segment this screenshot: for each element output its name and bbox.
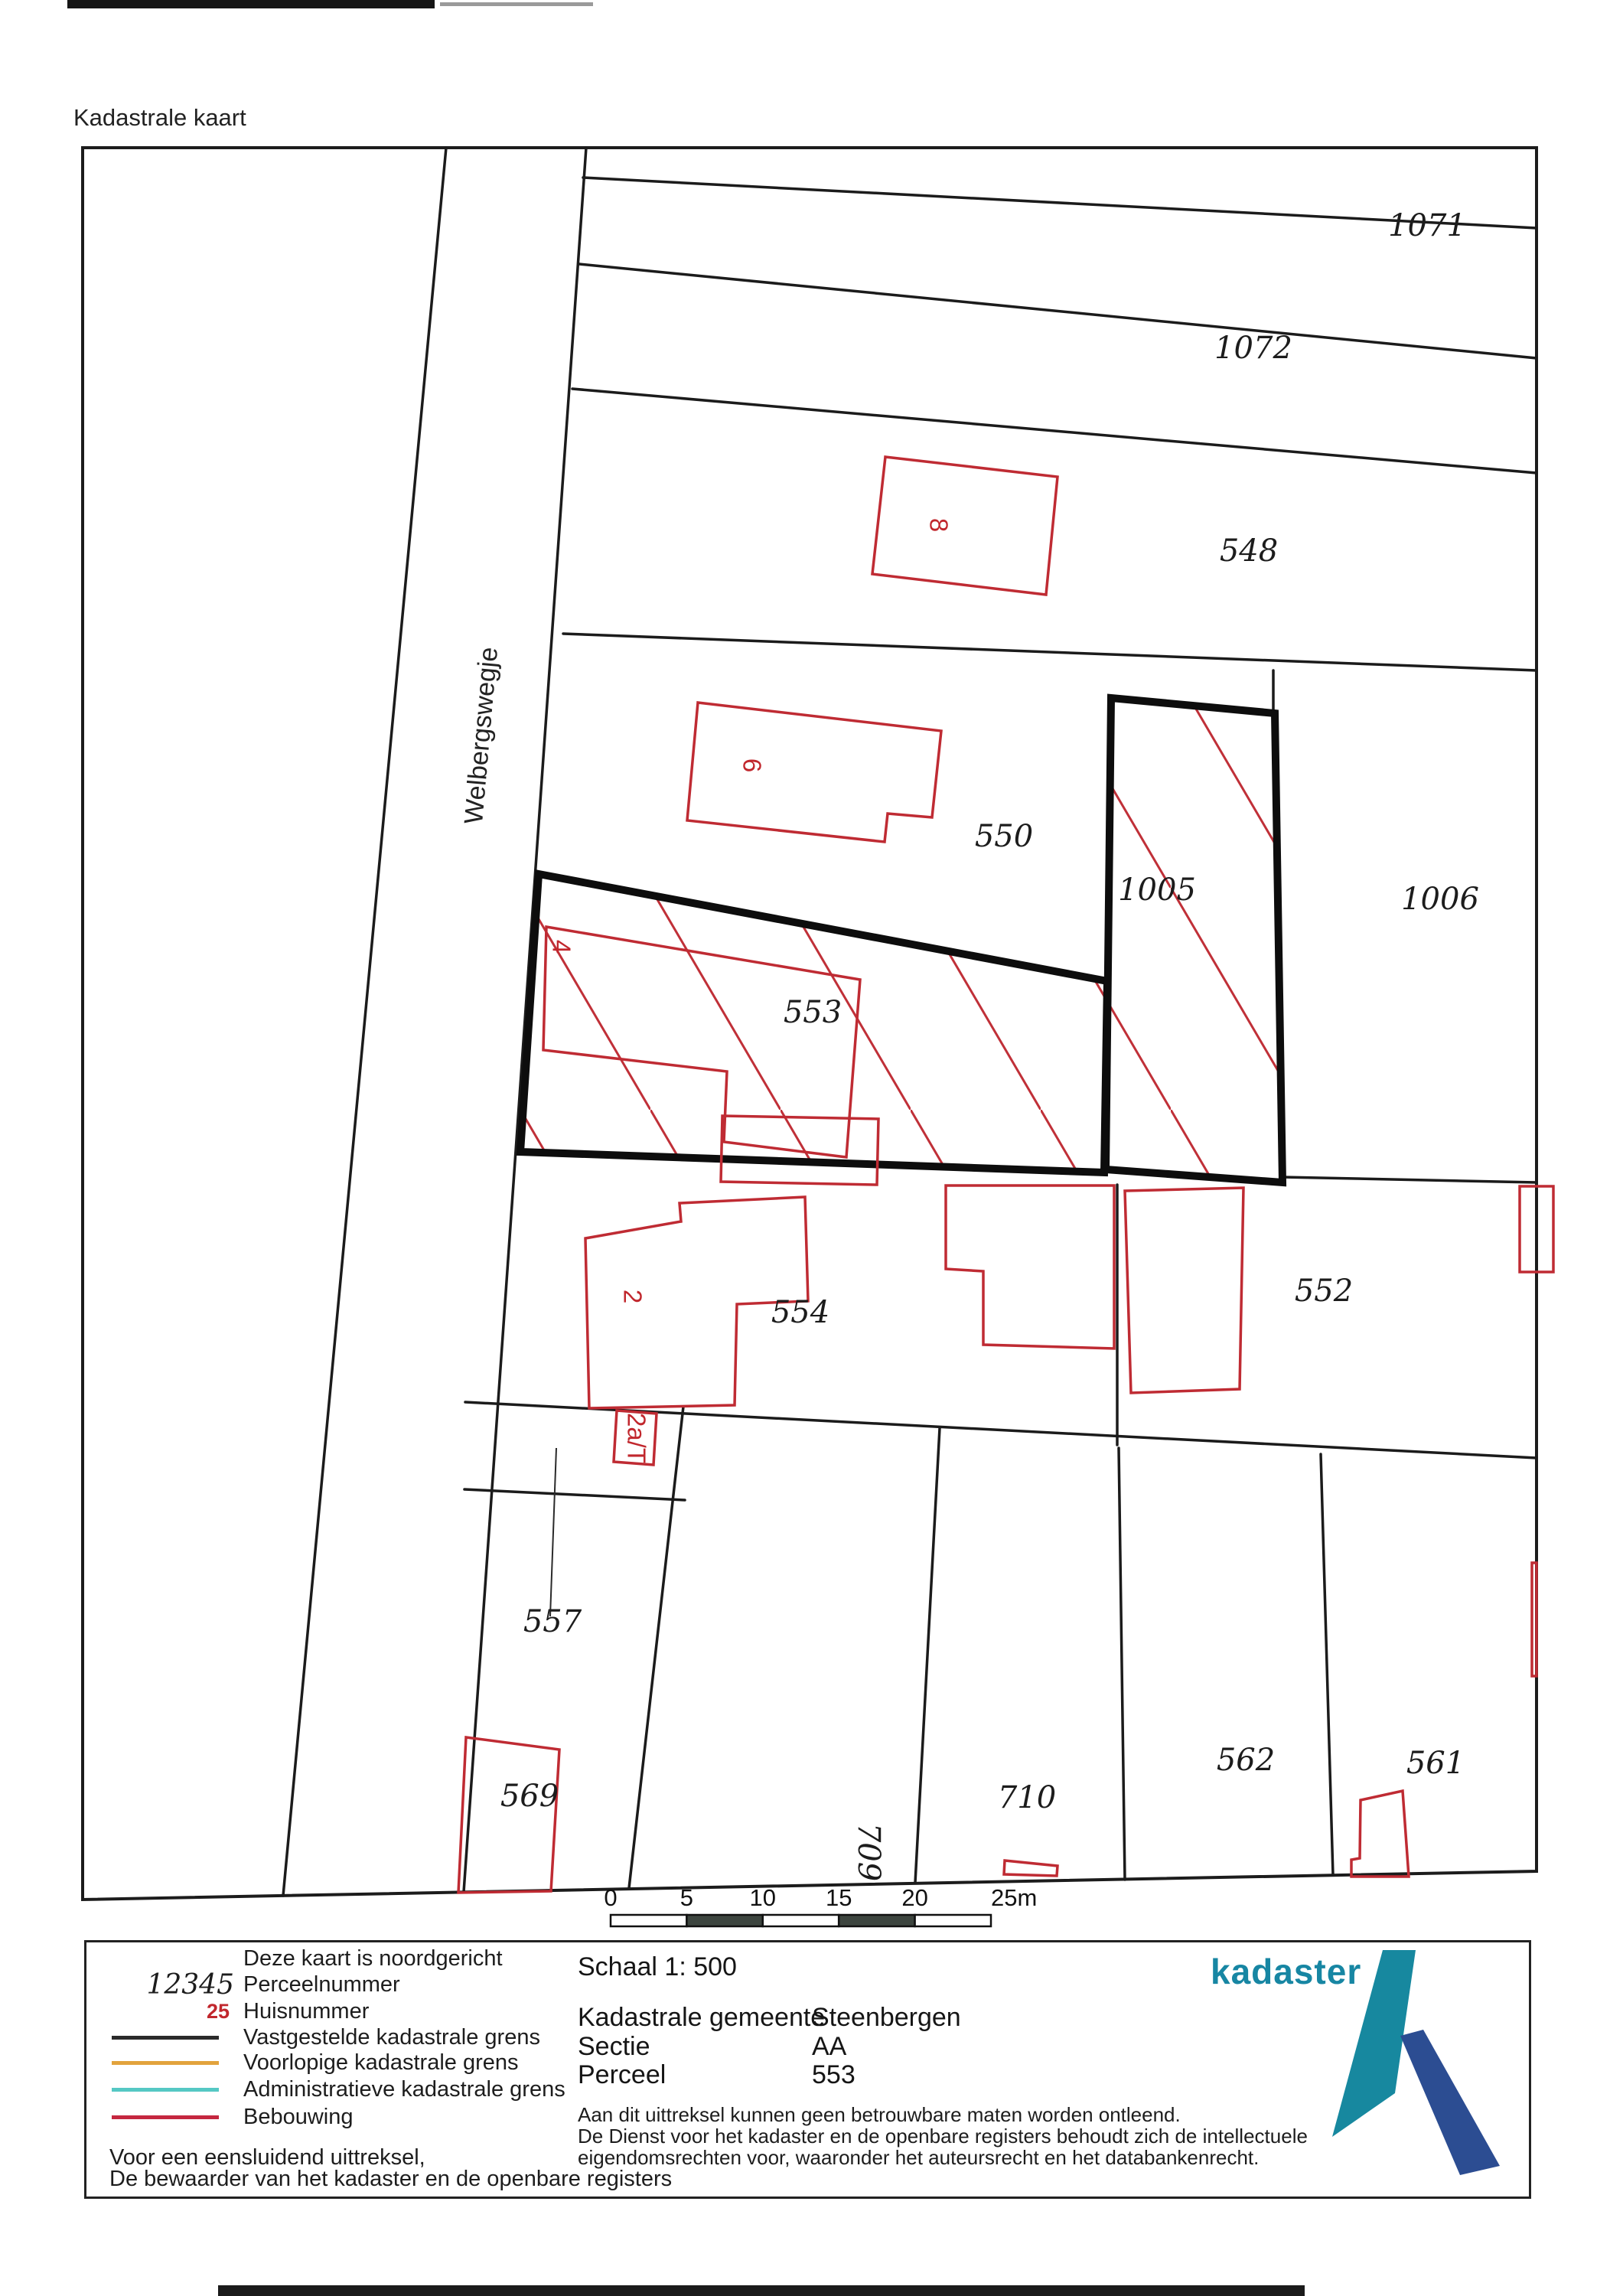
info-value: AA (812, 2032, 846, 2062)
disclaimer-line: eigendomsrechten voor, waaronder het aut… (578, 2146, 1259, 2170)
scalebar-label: 5 (680, 1884, 693, 1911)
boundary-grens-557-oost (629, 1407, 683, 1888)
legend-item: 25Huisnummer (109, 1999, 369, 2024)
measure-line (550, 1448, 556, 1616)
parcel-label-709: 709 (851, 1823, 886, 1881)
scalebar-label: 10 (750, 1884, 776, 1911)
boundary-grens-548-550 (563, 634, 1537, 670)
scalebar-label: 25m (991, 1884, 1037, 1911)
legend-item: Deze kaart is noordgericht (109, 1946, 503, 1971)
page: Kadastrale kaart 10711072548550100510065… (0, 0, 1623, 2296)
boundary-road-west (283, 148, 446, 1896)
legend-item: Bebouwing (109, 2105, 354, 2129)
boundary-grens-1072-548 (572, 389, 1537, 473)
info-value: 553 (812, 2060, 855, 2090)
boundary-grens-562-561 (1321, 1454, 1333, 1875)
legend-line-sample (112, 2061, 219, 2065)
parcel-label-550: 550 (975, 819, 1033, 854)
map-layer: 1071107254855010051006553554552557569709… (83, 148, 1553, 1926)
parcel-label-561: 561 (1406, 1746, 1465, 1781)
parcel-label-1005: 1005 (1118, 872, 1196, 908)
boundary-grens-1006-552 (1282, 1177, 1537, 1182)
house-number-4: 4 (547, 940, 575, 954)
scan-artifact-bottom_bar (218, 2285, 1305, 2296)
legend-label: Administratieve kadastrale grens (243, 2077, 565, 2102)
selected-parcel-1005 (1106, 698, 1282, 1182)
info-label: Kadastrale gemeente (578, 2003, 825, 2033)
info-label: Sectie (578, 2032, 650, 2062)
scalebar-segment (839, 1915, 914, 1926)
scalebar-label: 15 (826, 1884, 852, 1911)
parcel-label-553: 553 (784, 995, 842, 1030)
legend-sample (109, 2036, 243, 2040)
house-number-6: 6 (738, 758, 766, 772)
info-value: Steenbergen (812, 2003, 961, 2033)
legend-line-sample (112, 2088, 219, 2092)
parcel-label-557: 557 (523, 1604, 582, 1639)
house-number-2: 2 (618, 1290, 647, 1303)
street-label: Welbergswegje (459, 646, 504, 825)
legend-sample: 12345 (109, 1969, 243, 2001)
parcel-label-1072: 1072 (1214, 331, 1292, 366)
legend-sample (109, 2088, 243, 2092)
legend-item: Voorlopige kadastrale grens (109, 2050, 519, 2075)
building-gebouw-rand-oost (1532, 1563, 1537, 1676)
attestation-line: De bewaarder van het kadaster en de open… (109, 2167, 672, 2192)
parcel-label-710: 710 (998, 1780, 1056, 1815)
legend-sample: 25 (109, 2000, 243, 2024)
scalebar-label: 20 (901, 1884, 927, 1911)
parcel-label-548: 548 (1220, 533, 1278, 569)
legend-sample (109, 2115, 243, 2119)
building-gebouw-554 (946, 1186, 1114, 1349)
perceelnummer-sample: 12345 (146, 1969, 243, 2001)
disclaimer-line: De Dienst voor het kadaster en de openba… (578, 2125, 1308, 2148)
parcel-label-554: 554 (771, 1295, 829, 1330)
building-gebouw-710 (1004, 1861, 1058, 1876)
scalebar-segment (686, 1915, 762, 1926)
building-huis-6 (687, 703, 941, 842)
disclaimer-line: Aan dit uittreksel kunnen geen betrouwba… (578, 2103, 1181, 2127)
parcel-label-1006: 1006 (1401, 882, 1479, 917)
scalebar-segment (915, 1915, 991, 1926)
legend-label: Deze kaart is noordgericht (243, 1946, 503, 1971)
parcel-label-569: 569 (500, 1779, 559, 1814)
scan-artifact-top_bar (67, 0, 435, 8)
house-number-2a/T: 2a/T (622, 1413, 650, 1463)
building-gebouw-552 (1125, 1188, 1243, 1393)
legend-sample (109, 2061, 243, 2065)
huisnummer-sample: 25 (207, 2000, 243, 2023)
legend-label: Voorlopige kadastrale grens (243, 2050, 519, 2076)
parcel-label-562: 562 (1217, 1743, 1275, 1778)
parcel-label-1071: 1071 (1388, 208, 1466, 243)
legend-label: Vastgestelde kadastrale grens (243, 2025, 540, 2050)
legend-label: Bebouwing (243, 2105, 354, 2130)
boundary-grens-557-noord (464, 1489, 685, 1500)
parcel-label-552: 552 (1295, 1274, 1353, 1309)
building-huis-8 (872, 457, 1058, 595)
scalebar-segment (763, 1915, 839, 1926)
info-label: Perceel (578, 2060, 666, 2090)
scalebar-label: 0 (604, 1884, 617, 1911)
legend-item: 12345Perceelnummer (109, 1972, 400, 1997)
boundary-grens-710-562 (1119, 1448, 1125, 1880)
legend-line-sample (112, 2036, 219, 2040)
scale-text: Schaal 1: 500 (578, 1952, 737, 1982)
legend-label: Huisnummer (243, 1999, 369, 2024)
legend-label: Perceelnummer (243, 1972, 400, 1998)
boundary-grens-1071-1072 (579, 264, 1537, 358)
scan-artifact-top_bar_faint (440, 2, 593, 6)
footer-panel: Deze kaart is noordgericht12345Perceelnu… (84, 1940, 1531, 2199)
scalebar-segment (611, 1915, 686, 1926)
building-gebouw-561 (1351, 1791, 1409, 1877)
legend-item: Administratieve kadastrale grens (109, 2077, 565, 2102)
boundary-grens-709-710 (915, 1428, 940, 1883)
legend-item: Vastgestelde kadastrale grens (109, 2025, 540, 2050)
house-number-8: 8 (924, 518, 953, 532)
legend-line-sample (112, 2115, 219, 2119)
